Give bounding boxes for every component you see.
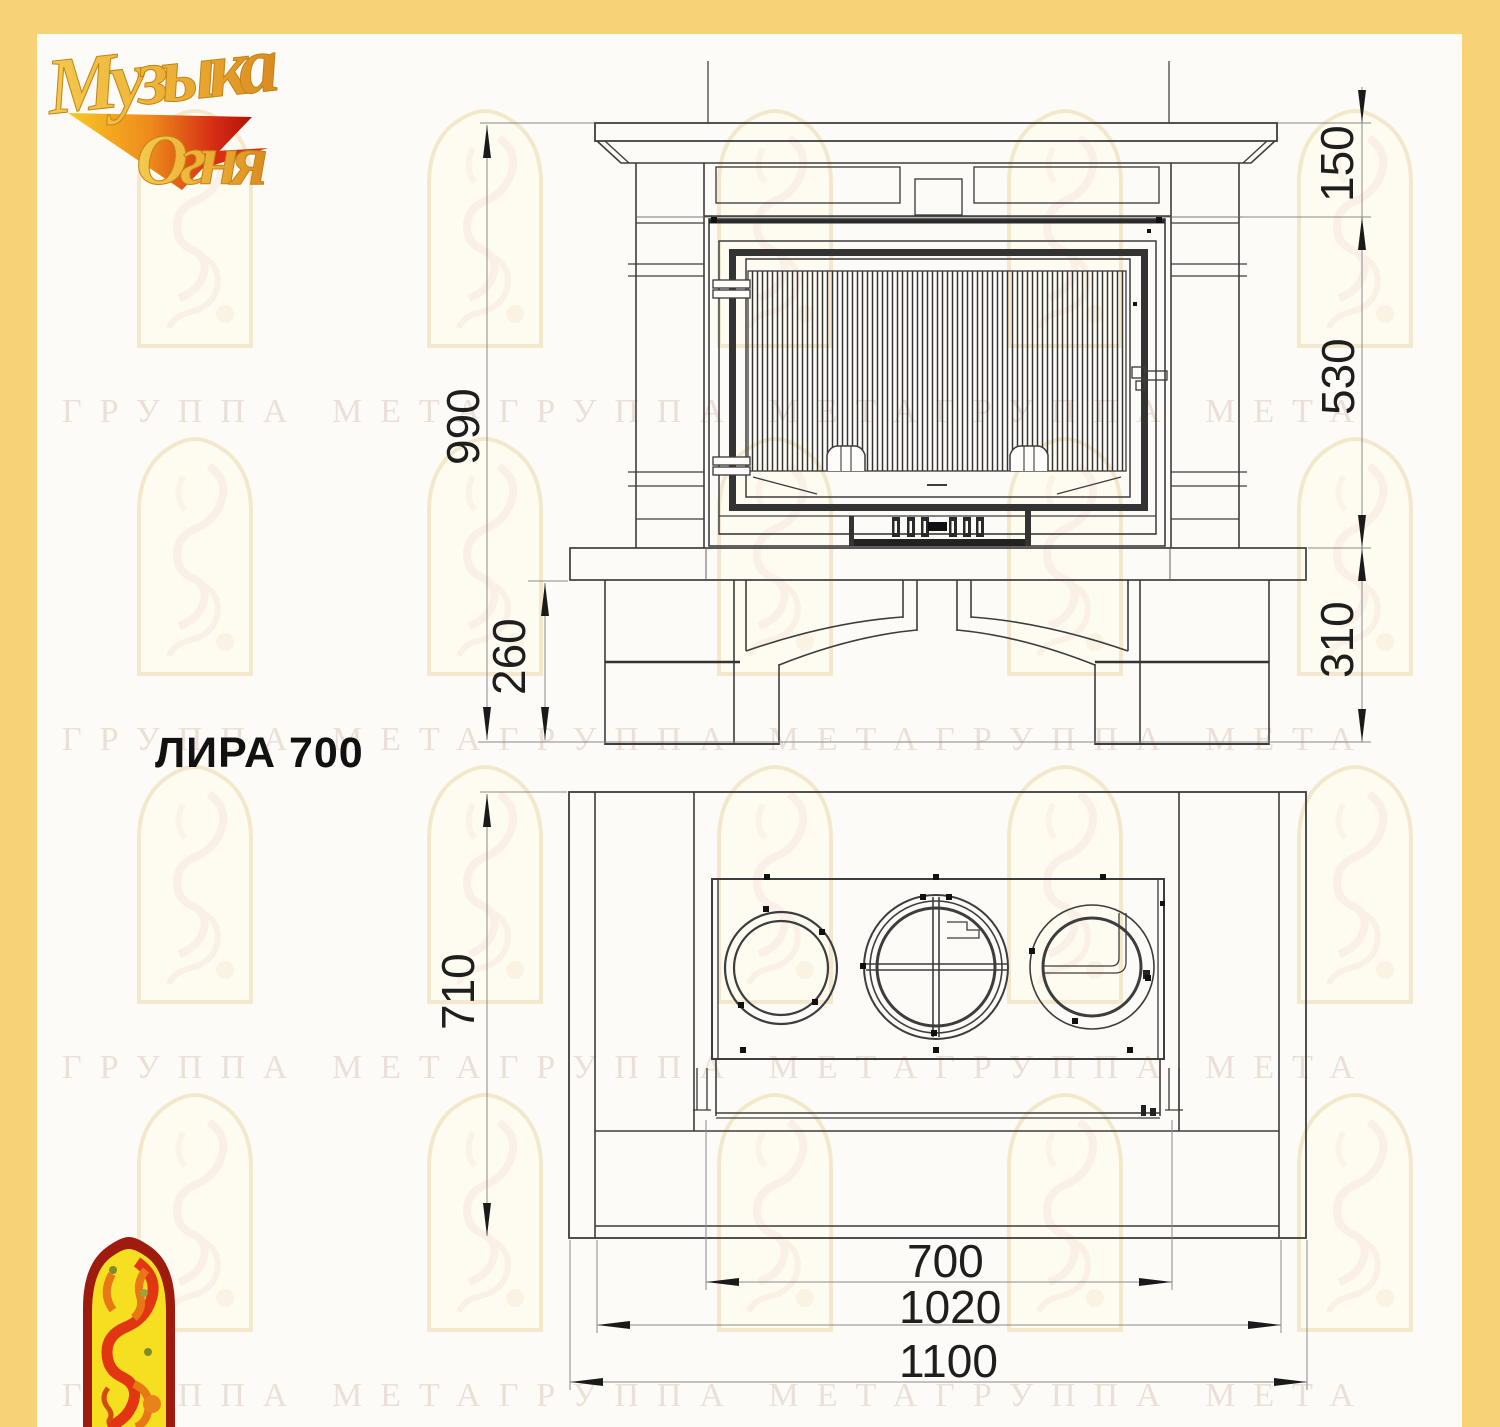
svg-text:1100: 1100: [899, 1335, 998, 1387]
svg-text:150: 150: [1311, 125, 1363, 202]
svg-text:ГРУППА МЕТАГРУППА МЕТАГРУППА М: ГРУППА МЕТАГРУППА МЕТАГРУППА МЕТА: [62, 1377, 1372, 1414]
svg-text:1020: 1020: [899, 1281, 1001, 1333]
svg-text:310: 310: [1311, 601, 1363, 678]
svg-text:990: 990: [437, 388, 489, 465]
svg-text:260: 260: [483, 618, 535, 695]
svg-text:710: 710: [432, 953, 484, 1030]
svg-text:700: 700: [907, 1235, 984, 1287]
svg-text:ГРУППА МЕТАГРУППА МЕТАГРУППА М: ГРУППА МЕТАГРУППА МЕТАГРУППА МЕТА: [62, 1049, 1372, 1086]
svg-text:ГРУППА МЕТАГРУППА МЕТАГРУППА М: ГРУППА МЕТАГРУППА МЕТАГРУППА МЕТА: [62, 393, 1372, 430]
svg-text:ЛИРА 700: ЛИРА 700: [155, 729, 364, 777]
svg-text:Музыка: Музыка: [41, 20, 283, 132]
svg-text:530: 530: [1312, 338, 1364, 415]
svg-text:Огня: Огня: [136, 120, 268, 200]
